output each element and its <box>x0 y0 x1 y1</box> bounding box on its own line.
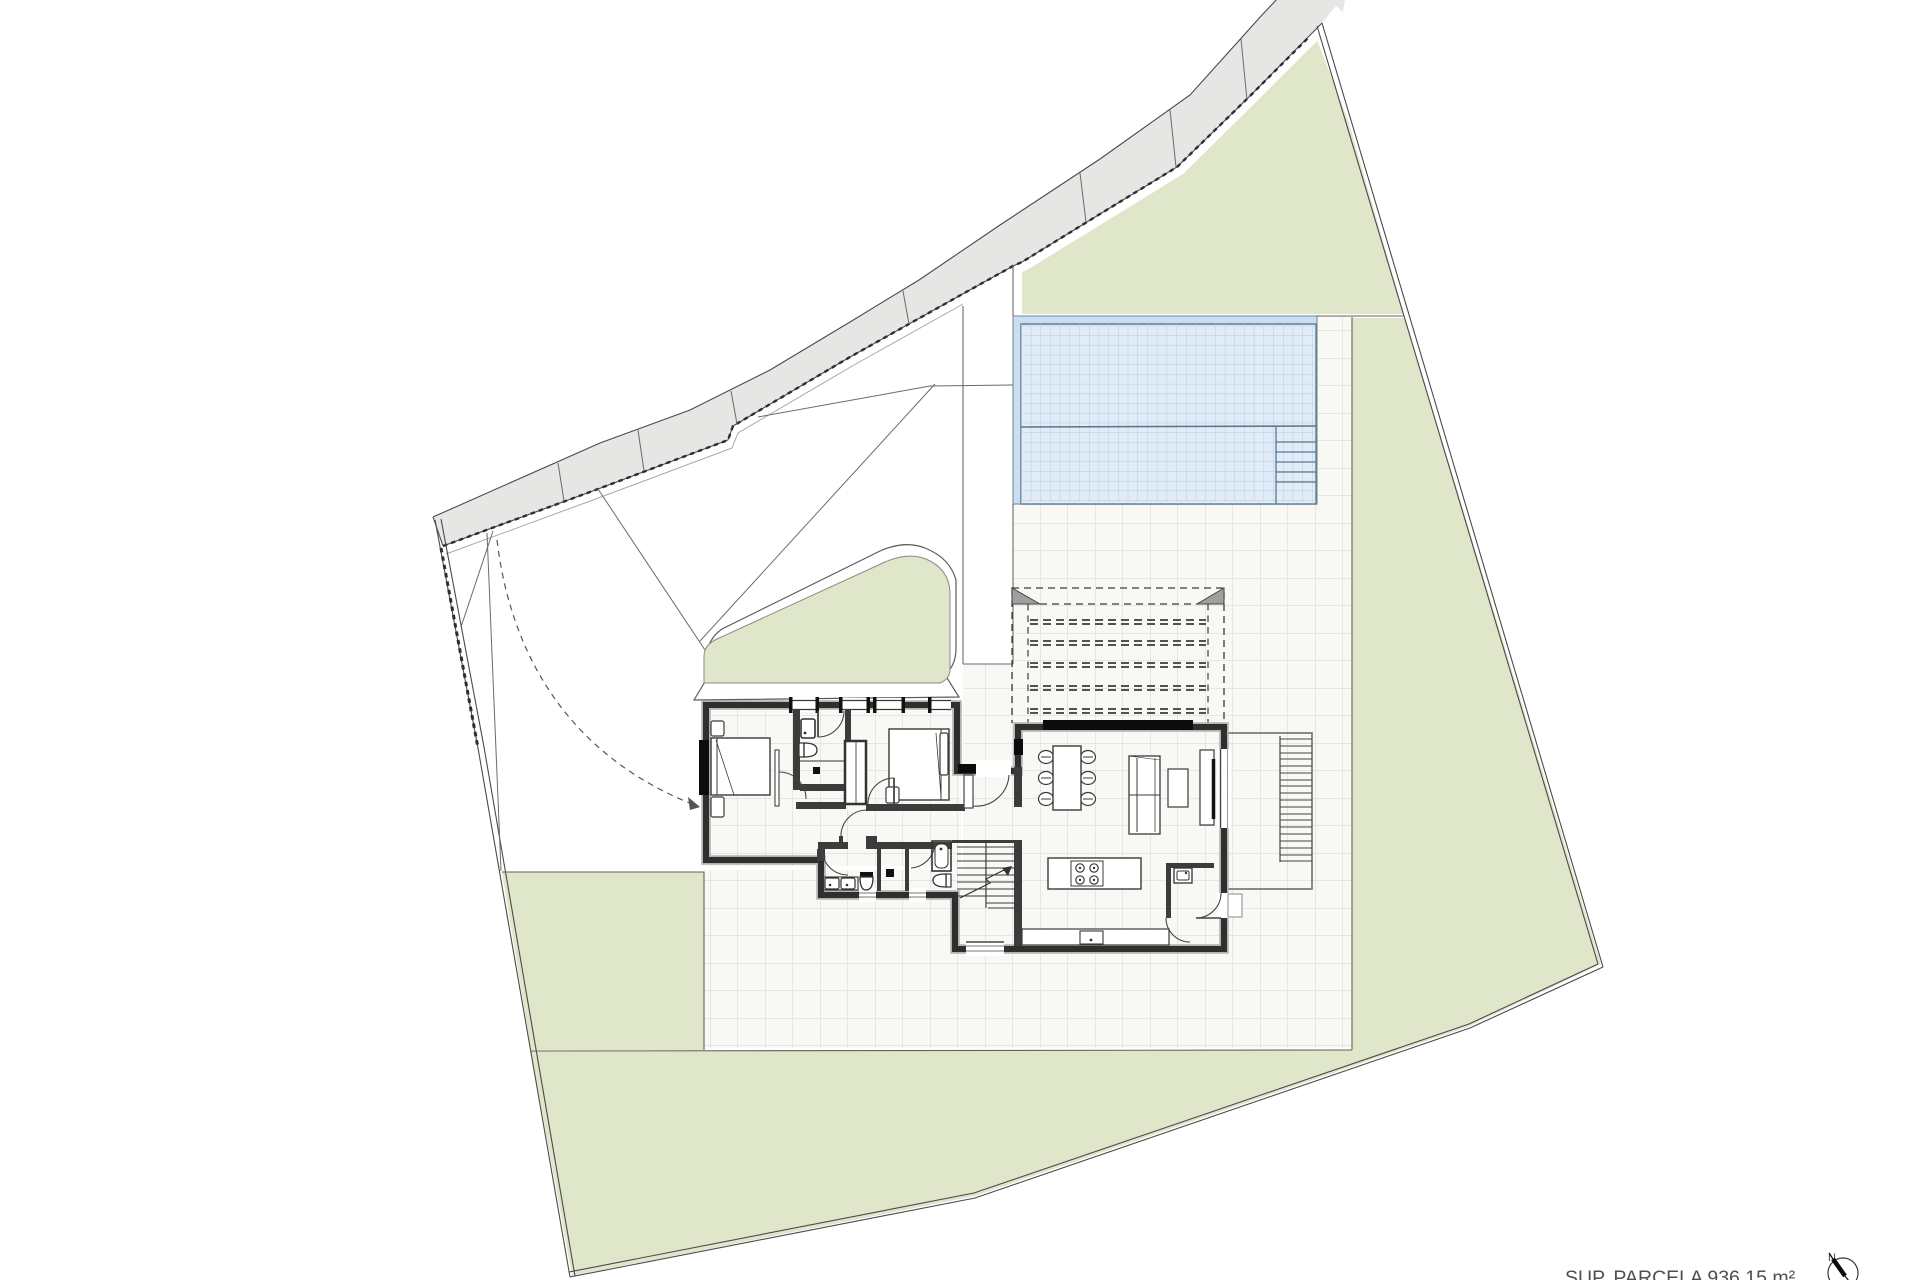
svg-text:SUP. PARCELA 936.15 m²: SUP. PARCELA 936.15 m² <box>1565 1267 1796 1280</box>
